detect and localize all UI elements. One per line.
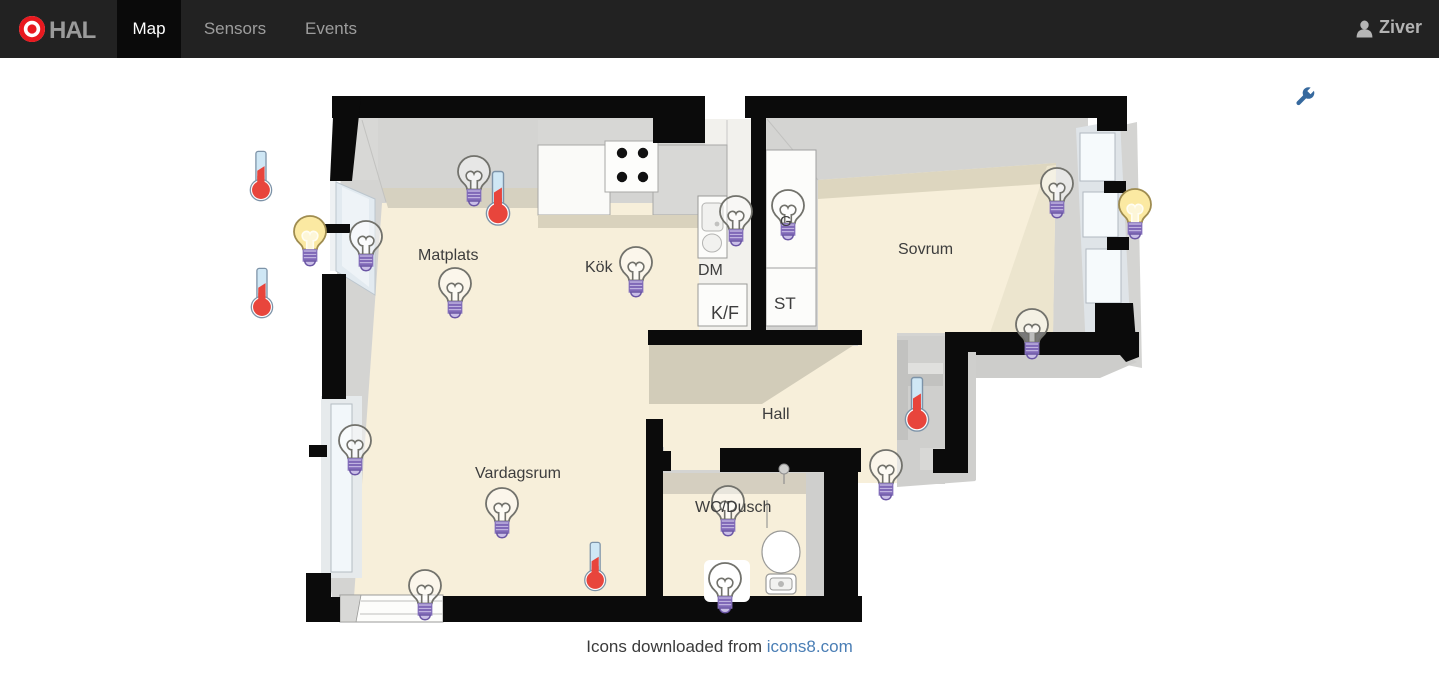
svg-text:ST: ST: [774, 294, 796, 313]
svg-text:Hall: Hall: [762, 406, 790, 423]
svg-text:Kök: Kök: [585, 259, 614, 276]
svg-text:G: G: [780, 213, 792, 230]
svg-text:Matplats: Matplats: [418, 247, 478, 264]
svg-text:Vardagsrum: Vardagsrum: [475, 465, 561, 482]
svg-text:WC/Dusch: WC/Dusch: [695, 499, 771, 516]
svg-text:DM: DM: [698, 262, 723, 279]
svg-text:K/F: K/F: [711, 303, 739, 323]
svg-text:Sovrum: Sovrum: [898, 241, 953, 258]
